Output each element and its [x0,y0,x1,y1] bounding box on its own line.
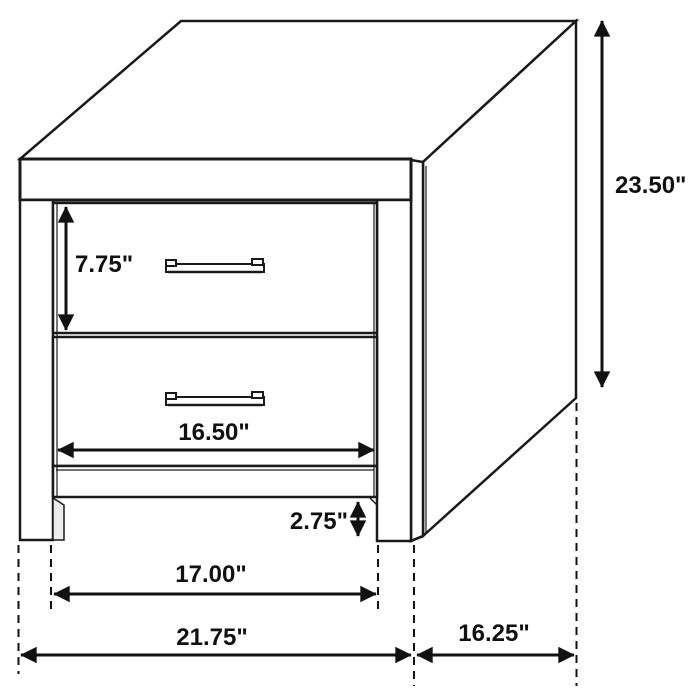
dim-label-side-depth: 16.25" [458,622,529,646]
drawer-1-handle-left-end [166,260,176,266]
diagram-canvas: 7.75" 23.50" 16.50" 2.75" 17.00" 21.75" … [0,0,700,700]
drawer-2-handle-left-end [166,393,176,399]
left-leg-inner-face [53,498,64,540]
bottom-rail [53,466,377,497]
dim-label-overall-height: 23.50" [615,174,686,198]
dim-label-foot-clearance: 2.75" [290,510,348,534]
dim-label-overall-width: 21.75" [176,626,247,650]
dim-label-drawer-height: 7.75" [75,253,133,277]
left-stile [20,200,53,540]
dim-label-drawer-width: 16.50" [178,421,249,445]
dim-label-inner-leg-span: 17.00" [175,563,246,587]
nightstand-line-drawing [0,0,700,700]
drawer-2-handle-right-end [252,392,263,398]
front-corner-strip [411,160,423,541]
top-band [20,159,411,200]
nightstand-body [20,21,576,541]
right-stile [377,200,411,541]
drawer-1-handle-right-end [252,259,263,265]
